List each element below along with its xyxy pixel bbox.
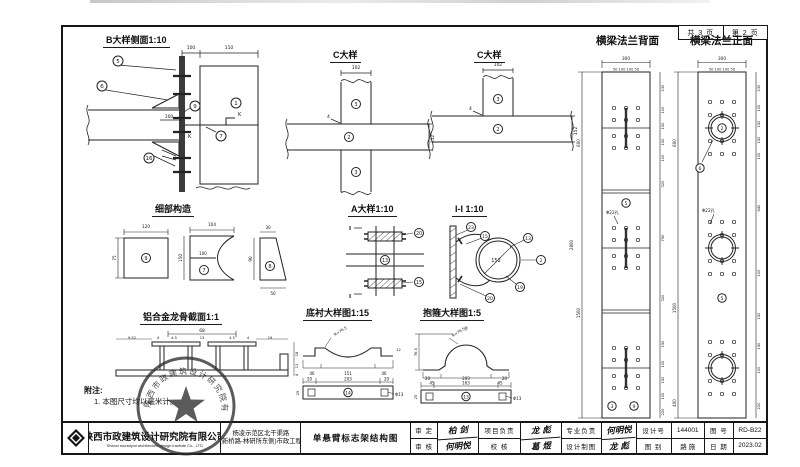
title-liner: 底衬大样图1:15 — [303, 309, 372, 321]
parts-detail-drawing: 9 120 75 7 104 100 150 8 30 50 90 — [108, 218, 308, 298]
ii-section-drawing: 152 23 15 13 2 19 20 — [438, 218, 550, 306]
clamp-detail-drawing: R=76.5 76.5 45 163 45 20 203 20 13 Φ13 2… — [413, 324, 521, 424]
fb-dim-spacing: 50 100 100 50 — [613, 68, 640, 72]
fb-rdim-5: 320 — [661, 180, 665, 188]
shenhe-signature: 何明悦 — [438, 436, 478, 453]
scan-artifact — [90, 0, 710, 3]
fb-label-5: 5 — [625, 201, 628, 207]
parts-label-7: 7 — [202, 268, 205, 274]
jiaohe-label: 校 核 — [479, 438, 520, 454]
b-k-mark: K — [238, 112, 242, 118]
c1-weld-mark: 4 — [327, 114, 330, 120]
fb-rdim-6: 750 — [661, 234, 665, 242]
clamp-pdim-2: 45 — [497, 381, 503, 386]
clamp-pdim-1: 163 — [462, 381, 470, 386]
riqi-value: 2023.02 — [734, 438, 766, 454]
ii-label-2: 2 — [540, 258, 543, 264]
title-parts: 细部构造 — [152, 205, 194, 217]
ff-left-dims: 600 1500 400 — [672, 139, 677, 407]
fb-rdim-8: 150 — [661, 340, 665, 348]
company-logo-cell — [63, 423, 89, 453]
drawing-sheet: 共 3 页 第 2 页 B大样侧面1:10 C大样 C大样 横梁法兰背面 横梁法… — [0, 0, 800, 467]
liner-bdim-0: 20 — [307, 377, 313, 382]
c2-dim-102: 102 — [494, 62, 503, 68]
b-dim-110: 110 — [225, 45, 234, 51]
keel-dim-68: 68 — [199, 328, 205, 334]
jiaohe-signature: 葛 煜 — [521, 436, 561, 453]
fb-rdim-10: 150 — [661, 376, 665, 384]
clamp-pdim-0: 45 — [429, 381, 435, 386]
c1-label-top: 3 — [354, 102, 357, 108]
ii-label-19: 19 — [517, 285, 523, 291]
official-stamp: 陕西市政建筑设计研究院有限公司 — [126, 352, 246, 460]
c2-part-labels: 3 2 — [494, 95, 503, 134]
title-flange-front: 横梁法兰正面 — [687, 36, 756, 49]
shenhe-label: 审 核 — [411, 438, 437, 454]
shejihao-label: 设计号 — [637, 423, 671, 438]
fb-label-3: 3 — [611, 404, 614, 410]
tubie-label: 图 别 — [637, 438, 671, 454]
stamp-star-icon — [167, 386, 205, 422]
b-label-1: 1 — [234, 101, 238, 107]
ff-ldim-600: 600 — [672, 139, 677, 147]
parts-dim-90: 90 — [248, 256, 253, 262]
company-logo-icon — [66, 428, 86, 448]
c1-dim-102: 102 — [352, 65, 361, 71]
liner-bar-h: 25 — [295, 390, 300, 395]
b-dim-100a: 100 — [187, 45, 196, 51]
clamp-bdim-0: 20 — [425, 376, 431, 381]
c2-label-mid: 2 — [496, 127, 499, 133]
b-detail-drawing: 5 6 9 1 7 16 100 110 100 K K — [78, 48, 273, 200]
parts-dim-100: 100 — [199, 251, 207, 256]
keel-sub-0: 9.52 — [128, 336, 136, 340]
col-shending-shenhe: 审 定 审 核 — [411, 423, 438, 453]
b-label-7: 7 — [219, 134, 223, 140]
fb-rdim-7: 320 — [661, 294, 665, 302]
liner-hole: Φ13 — [395, 392, 404, 397]
clamp-hole: Φ13 — [513, 396, 522, 401]
parts-linework — [115, 227, 286, 288]
ff-rdim-7: 150 — [757, 312, 761, 320]
fb-rdim-9: 100 — [661, 360, 665, 368]
liner-bdim-2: 20 — [384, 377, 390, 382]
clamp-height: 76.5 — [413, 347, 418, 356]
col-shejihao-tubie: 设计号 图 别 — [637, 423, 672, 453]
zhitu-signature: 龙 彪 — [602, 436, 637, 453]
title-detail-c1: C大样 — [330, 51, 361, 63]
col-zhuanye-zhitu-sig: 何明悦 龙 彪 — [602, 423, 637, 453]
liner-side-dim: 12 — [396, 347, 401, 352]
flange-back-drawing: 300 50 100 100 50 Φ22孔 5 3 9 600 1500 28… — [572, 58, 672, 426]
ff-ldim-400: 400 — [672, 399, 677, 407]
fb-rdim-1: 100 — [661, 106, 665, 114]
ii-label-20: 20 — [487, 296, 493, 302]
tubie-value: 路 施 — [672, 438, 704, 454]
a-detail-drawing: I I 20 13 15 — [340, 218, 428, 302]
fb-plate — [602, 72, 650, 418]
ff-right-dims: 230 100 150 150 100 640 100 150 150 100 … — [757, 84, 761, 410]
flange-front-drawing: 300 50 100 100 50 2 6 5 Φ22孔 600 1500 40… — [668, 58, 768, 426]
b-linework — [87, 50, 258, 192]
fb-rdim-11: 100 — [661, 392, 665, 400]
drawing-title-cell: 单悬臂标志架结构图 — [301, 423, 411, 453]
fb-ldim-2800: 2800 — [569, 239, 574, 250]
fb-ldim-600: 600 — [576, 139, 581, 147]
b-label-9: 9 — [193, 104, 197, 110]
fb-rdim-4: 100 — [661, 154, 665, 162]
ff-dim-total: 300 — [718, 56, 726, 61]
parts-dim-104: 104 — [208, 222, 216, 227]
parts-dim-30: 30 — [265, 225, 271, 230]
parts-label-9: 9 — [144, 256, 147, 262]
liner-bdim-1: 203 — [344, 377, 352, 382]
ff-rdim-3: 150 — [757, 136, 761, 144]
c1-part-labels: 3 2 3 — [345, 100, 361, 177]
ff-ldim-1500: 1500 — [672, 302, 677, 313]
fb-label-9: 9 — [633, 404, 636, 410]
col-tuhao-riqi-val: RD-B22 2023.02 — [734, 423, 766, 453]
clamp-bdim-2: 20 — [502, 376, 508, 381]
clamp-bdim-1: 203 — [462, 376, 470, 381]
ff-rdim-10: 220 — [757, 402, 761, 410]
col-xiangmu-jiaohe: 项目负责 校 核 — [479, 423, 521, 453]
c2-weld-mark: 4 — [469, 106, 472, 112]
liner-label: 14 — [345, 391, 351, 397]
c1-label-bot: 3 — [354, 170, 357, 176]
ff-rdim-9: 100 — [757, 366, 761, 374]
ii-label-23: 23 — [468, 225, 474, 231]
keel-sub-dims: 9.52 4 4.5 13 4.5 4 19 — [128, 336, 273, 340]
liner-detail-drawing: R=76.5 12 46 151 46 20 203 20 14 Φ13 25 — [295, 324, 403, 424]
liner-radius: R=76.5 — [333, 325, 348, 337]
ff-label-5: 5 — [721, 296, 724, 302]
ff-rdim-2: 150 — [757, 120, 761, 128]
col-tuhao-riqi: 图 号 日 期 — [705, 423, 734, 453]
col-shending-shenhe-sig: 柏 剑 何明悦 — [438, 423, 479, 453]
title-detail-a: A大样1:10 — [348, 205, 397, 217]
col-xiangmu-jiaohe-sig: 龙 彪 葛 煜 — [521, 423, 562, 453]
zhitu-label: 设计制图 — [562, 438, 601, 454]
fb-rdim-0: 230 — [661, 84, 665, 92]
b-dim-100b: 100 — [165, 114, 174, 120]
title-section-ii: I-I 1:10 — [452, 205, 487, 217]
shending-label: 审 定 — [411, 423, 437, 438]
liner-pdim-2: 46 — [381, 371, 387, 376]
title-detail-c2: C大样 — [474, 51, 505, 63]
keel-sub-1: 4 — [157, 336, 160, 340]
parts-dim-150: 150 — [178, 254, 183, 262]
a-label-top: 20 — [416, 231, 422, 237]
c2-label-top: 3 — [496, 97, 499, 103]
title-flange-back: 横梁法兰背面 — [593, 36, 662, 49]
keel-sub-3: 13 — [200, 336, 205, 340]
ii-label-13: 13 — [525, 236, 531, 242]
ff-rdim-0: 230 — [757, 84, 761, 92]
c1-detail-drawing: 102 152 4 3 2 3 — [283, 66, 433, 198]
fb-dim-lines — [578, 60, 660, 418]
ff-label-2: 2 — [721, 126, 724, 132]
fb-hole-note: Φ22孔 — [606, 209, 620, 216]
ff-dim-spacing: 50 100 100 50 — [709, 68, 736, 72]
tuhao-label: 图 号 — [705, 423, 733, 438]
ff-rdim-4: 100 — [757, 152, 761, 160]
ii-dia: 152 — [491, 258, 501, 264]
b-k-mark-2: K — [188, 134, 192, 140]
col-shejihao-tubie-val: 144001 路 施 — [672, 423, 705, 453]
a-label-bot: 15 — [416, 280, 422, 286]
zhuanye-label: 专业负责 — [562, 423, 601, 438]
b-label-6: 6 — [100, 84, 104, 90]
fb-rdim-2: 150 — [661, 122, 665, 130]
clamp-bar-h: 25 — [413, 394, 418, 399]
ff-label-6: 6 — [699, 166, 702, 172]
c1-label-mid: 2 — [347, 135, 350, 141]
ff-rdim-1: 100 — [757, 104, 761, 112]
liner-pdim-1: 151 — [344, 371, 352, 376]
keel-sub-4: 4.5 — [229, 336, 235, 340]
ff-hole-note: Φ22孔 — [702, 207, 716, 214]
keel-sub-6: 19 — [268, 336, 273, 340]
clamp-linework — [415, 326, 512, 403]
ff-rdim-6: 100 — [757, 269, 761, 277]
ff-rdim-5: 640 — [757, 204, 761, 212]
col-zhuanye-zhitu: 专业负责 设计制图 — [562, 423, 602, 453]
parts-label-8: 8 — [268, 264, 271, 270]
a-section-mark-bot: I — [349, 294, 351, 300]
c2-linework — [431, 68, 575, 151]
a-label-mid: 13 — [382, 258, 388, 264]
tuhao-value: RD-B22 — [734, 423, 766, 438]
a-section-mark-top: I — [349, 226, 351, 232]
riqi-label: 日 期 — [705, 438, 733, 454]
fb-rdim-3: 150 — [661, 138, 665, 146]
b-label-5: 5 — [116, 59, 120, 65]
fb-right-dims: 230 100 150 150 100 320 750 320 150 100 … — [661, 84, 665, 416]
title-clamp: 抱箍大样图1:5 — [420, 309, 484, 321]
b-label-16: 16 — [146, 156, 153, 162]
xiangmu-label: 项目负责 — [479, 423, 520, 438]
title-detail-b: B大样侧面1:10 — [103, 36, 170, 48]
parts-dim-120: 120 — [142, 224, 150, 229]
fb-ldim-1500: 1500 — [576, 307, 581, 318]
parts-dim-50: 50 — [270, 291, 276, 296]
fb-dim-total: 300 — [622, 56, 630, 61]
keel-sub-2: 4.5 — [171, 336, 177, 340]
parts-dim-75: 75 — [112, 255, 117, 261]
clamp-label: 13 — [463, 395, 469, 401]
clamp-radius: R=76.5 — [451, 326, 466, 338]
fb-rdim-12: 220 — [661, 408, 665, 416]
title-keel: 铝合金龙骨截面1:1 — [140, 313, 222, 325]
ii-label-15: 15 — [482, 234, 488, 240]
c2-detail-drawing: 102 152 4 3 2 — [428, 66, 576, 178]
ff-rdim-8: 150 — [757, 342, 761, 350]
shejihao-value: 144001 — [672, 423, 704, 438]
liner-pdim-0: 46 — [309, 371, 315, 376]
keel-sub-5: 4 — [247, 336, 250, 340]
